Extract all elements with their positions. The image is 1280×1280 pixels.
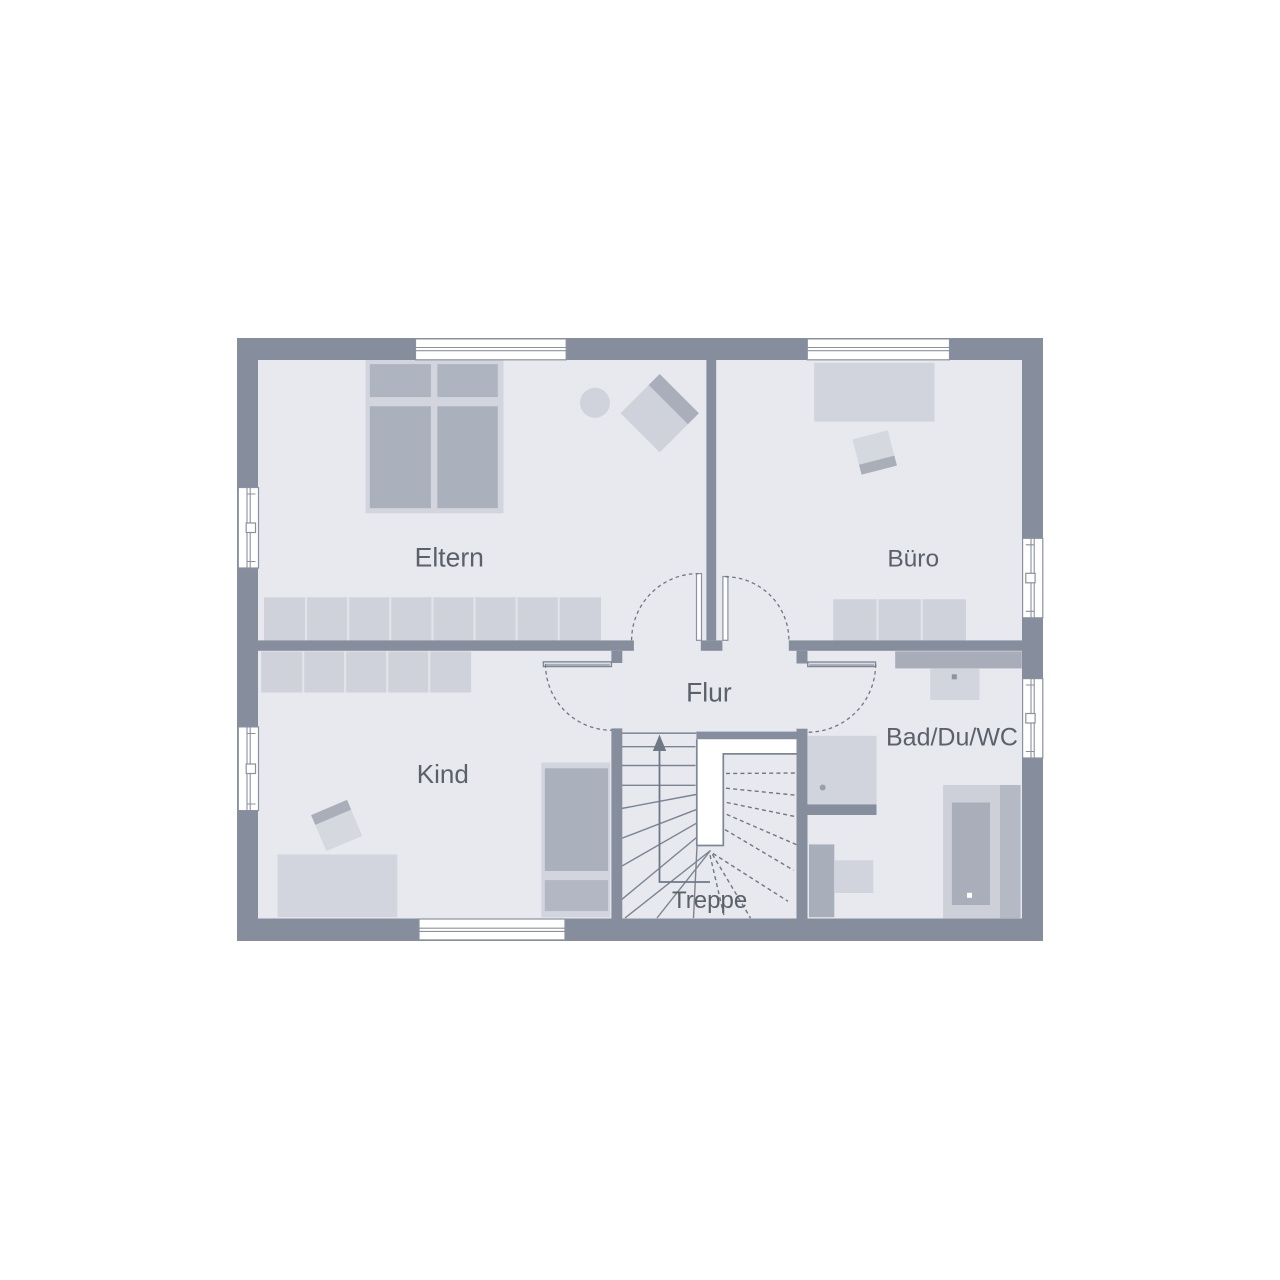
svg-text:Eltern: Eltern [415, 543, 484, 573]
svg-text:Kind: Kind [417, 759, 469, 789]
svg-text:Büro: Büro [887, 546, 939, 573]
svg-text:Flur: Flur [686, 678, 732, 708]
svg-text:Bad/Du/WC: Bad/Du/WC [886, 724, 1018, 752]
svg-text:Treppe: Treppe [672, 887, 747, 914]
